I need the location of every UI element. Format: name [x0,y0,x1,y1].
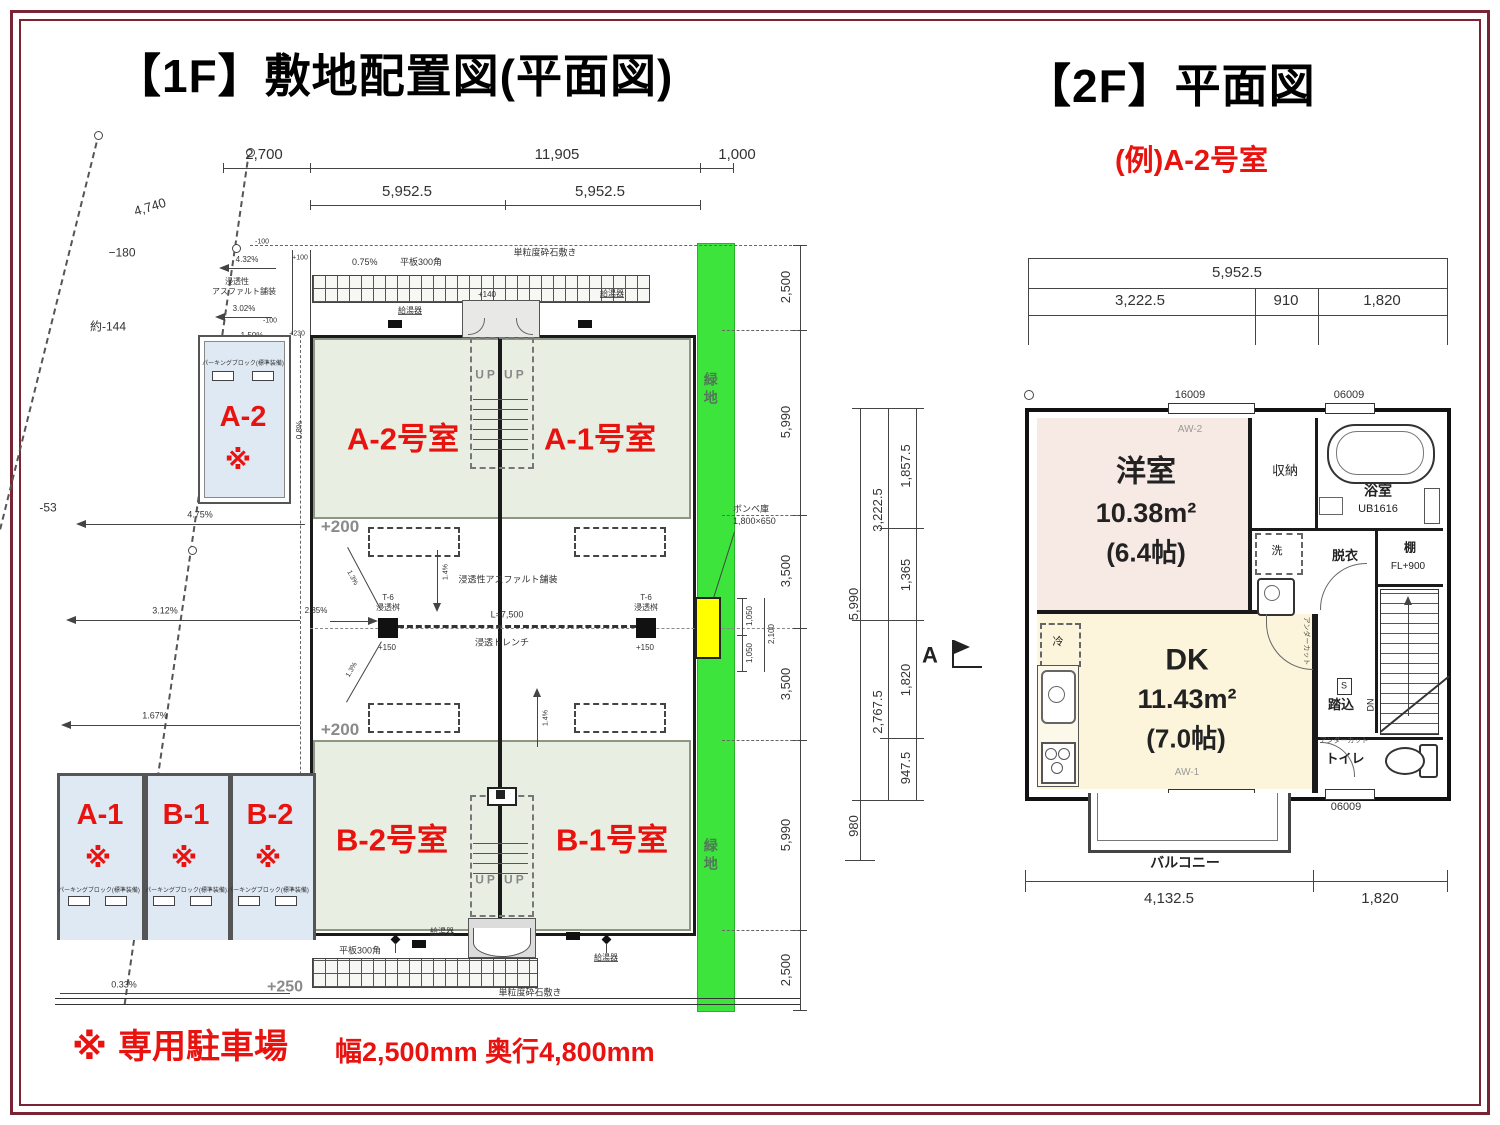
basin-t6-label: T-6 [640,594,652,602]
dim-extension [722,515,798,516]
dim-tick [880,528,924,529]
f2-left-g1b: 1,365 [899,559,913,592]
room-a1-label: A-1号室 [544,424,656,457]
dim-1050: 1,050 [746,606,754,626]
parking-block-note: パーキングブロック(標準装備) [145,888,227,894]
dim-1050: 1,050 [746,643,754,663]
valve-stem [395,943,396,953]
window-16009 [1168,403,1255,414]
wall-yoshitsu-right [1248,418,1252,614]
stairs-up-label: UP UP [475,874,526,887]
bath-ub-label: UB1616 [1358,504,1398,516]
asphalt-label-line2: アスファルト舗装 [212,288,276,296]
parking-block-note: パーキングブロック(標準装備) [202,361,284,367]
slope-4.75: 4.75% [187,510,213,519]
stairs-arrow [1408,600,1409,716]
slope-1.67: 1.67% [142,711,168,720]
dim-tick [793,628,807,629]
slope-3.02: 3.02% [233,305,256,313]
stairs-bottom [473,840,528,874]
slope-arrow [228,268,276,269]
slope-1.4: 1.4% [542,710,549,726]
note-mark: ※ [72,1028,107,1066]
window-label-16009: 16009 [1175,390,1206,402]
undercut-label: アンダーカット [1302,617,1309,666]
dim-5952-right: 5,952.5 [575,184,625,200]
approach-edge [310,250,311,335]
entry-label: 踏込 [1328,698,1354,712]
south-boundary-line [55,998,800,999]
dim-tick [852,800,924,801]
dim-tick [852,620,924,621]
water-heater-label: 給湯器 [600,290,624,298]
vanity-sink-bowl [1264,585,1280,601]
dim-extension [722,330,798,331]
wall-hall-top [1252,528,1443,531]
level-m100: -100 [255,238,269,245]
f2-dim-1820: 1,820 [1363,293,1401,309]
road-arrow [85,524,305,525]
parking-a1-mark: ※ [85,844,111,872]
entrance-canopy-arc [473,928,531,957]
paved-walkway-bottom [312,958,538,988]
water-heater-unit [578,320,592,328]
parking-a1-label: A-1 [77,800,124,830]
dim-tick [737,598,747,599]
dim-tick [845,860,875,861]
f2-left-g1a: 1,857.5 [899,444,913,487]
washer-label: 洗 [1272,546,1283,558]
shelf-height-label: FL+900 [1391,562,1425,573]
service-pad [574,527,666,557]
dim-tick [310,200,311,210]
service-pad [368,527,460,557]
right-dim-4: 5,990 [779,819,793,852]
boundary-level-144: 約-144 [90,321,126,334]
water-heater-unit [412,940,426,948]
f2-left-outer: 5,990 [847,588,861,621]
paving-tile-label: 平板300角 [339,946,381,955]
dim-tick [737,635,747,636]
stove-burner [1045,748,1057,760]
dim-tick [852,408,924,409]
parking-a2-label: A-2 [220,402,267,432]
meter-dot [496,790,505,799]
room-b2-label: B-2号室 [336,825,448,858]
slope-arrow-v [437,550,438,605]
dim-tick [1025,870,1026,892]
right-dim-1: 5,990 [779,406,793,439]
dim-line [916,408,917,800]
closet-label: 収納 [1272,464,1298,478]
dim-tick [1313,870,1314,892]
wheel-stop [105,896,127,906]
asphalt-mid-label: 浸透性アスファルト舗装 [458,575,557,584]
level-m100: -100 [263,317,277,324]
slope-arrowhead [368,617,378,625]
right-dim-3: 3,500 [779,668,793,701]
section-flag [954,640,970,654]
section-marker-a: A [922,643,938,666]
parking-b1-label: B-1 [163,800,210,830]
dim-line [223,168,733,169]
dim-tick [1447,258,1448,345]
dim-tick [1318,288,1319,345]
dim-tick [1255,288,1256,345]
f2-dim-1820-bottom: 1,820 [1361,891,1399,907]
wall-shelf-bottom [1378,584,1443,587]
balcony-label: バルコニー [1150,856,1220,871]
trench-length-label: L=7,500 [491,610,524,619]
datum-point [1024,390,1034,400]
kitchen-faucet [1048,686,1065,703]
wheel-stop [153,896,175,906]
stove-burner [1051,762,1063,774]
basin-t6-label: T-6 [382,594,394,602]
level-p100: +100 [292,254,308,261]
stairs-up-label: UP UP [475,369,526,382]
wheel-stop [190,896,212,906]
boundary-level-180: −180 [108,247,135,260]
right-dim-5: 2,500 [779,954,793,987]
dim-tick [733,163,734,173]
level-p200: +200 [321,721,359,739]
gas-cylinder-label: ボンベ庫 [733,505,769,514]
road-arrow [75,620,300,621]
dim-line [1028,258,1447,259]
dim-tick [700,200,701,210]
stairs-top [473,392,528,450]
dim-line [1028,315,1447,316]
parking-a2-mark: ※ [225,446,251,474]
wall-yoshitsu-dk [1037,610,1268,614]
f2-dim-balcony-width: 4,132.5 [1144,891,1194,907]
dim-tick [505,200,506,210]
road-arrowhead [76,520,86,528]
dk-area: 11.43m² [1137,685,1236,713]
basin-masu-label: 浸透桝 [634,604,658,612]
water-heater-label: 給湯器 [594,954,618,962]
road-line [60,993,290,994]
bathtub-inner [1336,431,1424,475]
floor-plan-sheet: 【1F】敷地配置図(平面図) 【2F】平面図 (例)A-2号室 4,740 −1… [0,0,1500,1125]
level-p230: +230 [289,330,305,337]
dim-1000: 1,000 [718,147,756,163]
shelf-label: 棚 [1404,542,1416,555]
bath-counter [1424,488,1440,524]
slope-arrow [330,621,370,622]
fridge-label: 冷 [1053,637,1064,649]
dim-line [888,408,889,800]
f2-left-g2b: 947.5 [899,752,913,785]
room-a2-label: A-2号室 [347,424,459,457]
dim-line [1025,881,1447,882]
dim-2100: 2,100 [768,624,776,644]
right-dim-0: 2,500 [779,271,793,304]
window-label-06009: 06009 [1331,802,1362,814]
water-heater-unit [388,320,402,328]
water-heater-label: 給湯器 [398,307,422,315]
dk-name: DK [1165,644,1208,676]
dim-tick [793,1010,807,1011]
window-aw1-label: AW-1 [1175,768,1199,779]
valve-stem [606,943,607,953]
green-belt-label-top: 緑地 [703,372,718,408]
parking-b1-mark: ※ [171,844,197,872]
toilet-bowl [1385,747,1425,775]
undercut-label: アンダーカット [1320,737,1369,744]
boundary-point [94,131,103,140]
trench-label: 浸透トレンチ [475,638,529,647]
window-06009-bottom [1325,789,1375,800]
parking-b2-mark: ※ [255,844,281,872]
gas-cylinder-size: 1,800×650 [733,517,776,526]
right-dim-2: 3,500 [779,555,793,588]
slope-2.35: 2.35% [305,607,328,615]
road-arrow [70,725,300,726]
f2-left-balc: 980 [847,815,861,837]
road-arrowhead [61,721,71,729]
stairs-arrowhead [1404,596,1412,605]
boundary-level-53: -53 [39,502,56,515]
percolation-basin-right [636,618,656,638]
f2-subtitle: (例)A-2号室 [1115,146,1268,176]
window-06009-top [1325,403,1375,414]
balcony-inner-rail [1097,793,1278,841]
asphalt-label-line1: 浸透性 [225,278,249,286]
wheel-stop [238,896,260,906]
dim-tick [737,671,747,672]
gas-cylinder-box [695,597,721,659]
boundary-point [188,546,197,555]
parking-block-note: パーキングブロック(標準装備) [58,888,140,894]
slope-arrow [224,317,272,318]
level-p200: +200 [321,518,359,536]
window-label-06009: 06009 [1334,390,1365,402]
slope-4.32: 4.32% [236,256,259,264]
yoshitsu-name: 洋室 [1116,456,1176,488]
wheel-stop [212,371,234,381]
bath-label: 浴室 [1364,484,1392,499]
slope-1.4: 1.4% [442,564,449,580]
f2-dim-total: 5,952.5 [1212,265,1262,281]
dk-mats: (7.0帖) [1146,725,1225,752]
boundary-point [232,244,241,253]
bath-door-fold [1320,498,1342,514]
f2-stairs [1380,589,1439,735]
level-p150: +150 [378,644,396,652]
road-arrowhead [66,616,76,624]
water-heater-label: 給湯器 [430,928,454,936]
dim-extension [722,930,798,931]
f2-title: 【2F】平面図 [1025,62,1316,110]
dim-5952-left: 5,952.5 [382,184,432,200]
approach-edge [292,250,293,335]
dim-extension [722,740,798,741]
dim-line [860,408,861,860]
slope-arrowhead [215,313,225,321]
dressing-label: 脱衣 [1332,549,1358,563]
dim-tick [223,163,224,173]
level-p140: +140 [478,291,496,299]
slope-0.8: 0.8% [296,421,304,439]
slope-arrow-v [537,695,538,747]
dim-tick [793,245,807,246]
water-heater-unit [566,932,580,940]
window-aw2-label: AW-2 [1178,425,1202,436]
boundary-dim-4740: 4,740 [132,196,167,219]
gravel-label-top: 単粒度砕石敷き [513,248,576,257]
wheel-stop [68,896,90,906]
note-detail: 幅2,500mm 奥行4,800mm [335,1038,655,1066]
f2-dim-3222: 3,222.5 [1115,293,1165,309]
wheel-stop [275,896,297,906]
service-pad [368,703,460,733]
north-boundary-line [250,245,797,246]
yoshitsu-mats: (6.4帖) [1106,539,1185,566]
f2-left-g2: 2,767.5 [871,690,885,733]
site-boundary-line-2 [0,133,100,696]
f2-dim-910: 910 [1273,293,1298,309]
walkway-slope-label: 0.75% [352,258,378,267]
dim-tick [310,163,311,173]
percolation-trench-line [398,625,636,628]
yoshitsu-area: 10.38m² [1096,499,1197,527]
parking-block-note: パーキングブロック(標準装備) [227,888,309,894]
percolation-basin-left [378,618,398,638]
dim-tick [1447,870,1448,892]
dim-11905: 11,905 [535,147,580,163]
parking-b2-label: B-2 [247,800,294,830]
south-boundary-line [55,1004,800,1005]
slope-arrowhead [533,688,541,697]
slope-arrowhead [433,603,441,612]
level-p250: +250 [267,980,303,997]
dim-tick [1028,258,1029,345]
f2-left-g1: 3,222.5 [871,488,885,531]
f1-title: 【1F】敷地配置図(平面図) [115,52,673,100]
f2-left-g2a: 1,820 [899,664,913,697]
stove-burner [1058,748,1070,760]
room-b1-label: B-1号室 [556,825,668,858]
note-title: 専用駐車場 [118,1030,288,1066]
dim-tick [880,738,924,739]
dim-line-small [764,598,765,672]
wall-bath-left [1315,418,1318,528]
dim-2700: 2,700 [245,147,283,163]
shoe-box-label: S [1341,681,1347,690]
slope-3.12: 3.12% [152,606,178,615]
wheel-stop [252,371,274,381]
slope-arrowhead [219,264,229,272]
section-flag-base [954,666,982,668]
stairs-dn-label: DN [1366,699,1375,712]
dim-tick [700,163,701,173]
service-pad [574,703,666,733]
gravel-label-bottom: 単粒度砕石敷き [498,988,561,997]
level-p150: +150 [636,644,654,652]
dim-line [1028,288,1447,289]
green-belt-label-bottom: 緑地 [703,838,718,874]
paving-tile-label: 平板300角 [400,258,442,267]
slope-0.33: 0.33% [111,980,137,989]
